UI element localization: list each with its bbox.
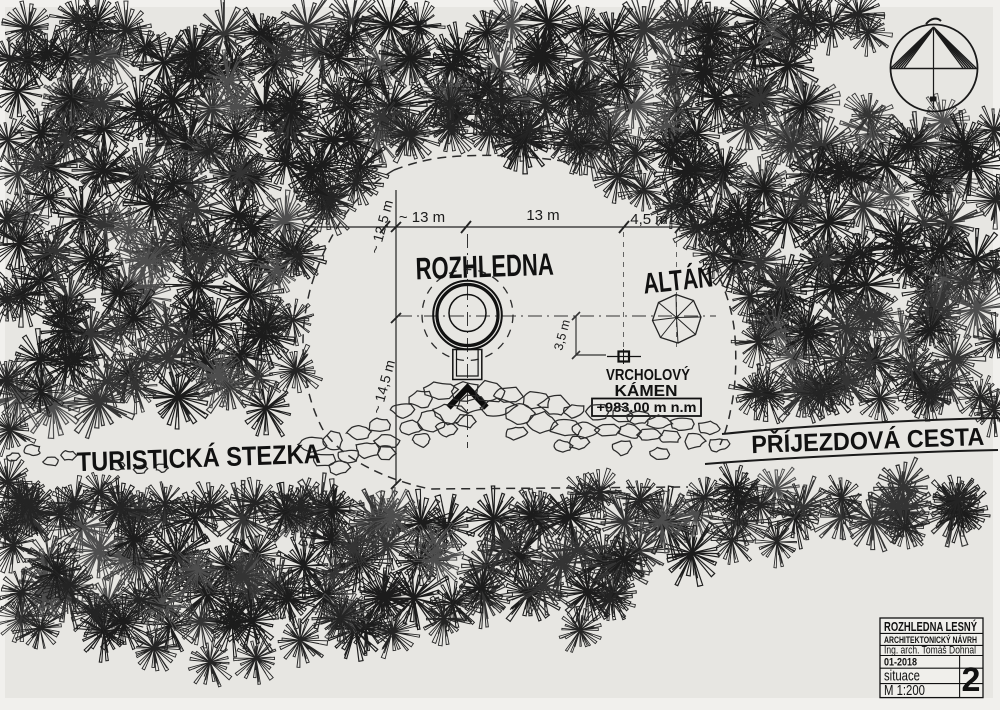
svg-text:ROZHLEDNA: ROZHLEDNA [415,247,554,287]
svg-text:VRCHOLOVÝ: VRCHOLOVÝ [606,365,690,384]
svg-text:13 m: 13 m [526,207,559,224]
svg-text:Ing. arch. Tomáš Dohnal: Ing. arch. Tomáš Dohnal [884,645,976,657]
svg-text:ROZHLEDNA LESNÝ: ROZHLEDNA LESNÝ [884,619,977,634]
svg-text:01-2018: 01-2018 [884,657,917,669]
svg-text:~ 13 m: ~ 13 m [399,209,445,226]
svg-text:KÁMEN: KÁMEN [615,381,678,400]
svg-text:4,5 m: 4,5 m [630,211,668,228]
svg-text:M 1:200: M 1:200 [884,683,925,699]
svg-text:2: 2 [962,661,981,699]
